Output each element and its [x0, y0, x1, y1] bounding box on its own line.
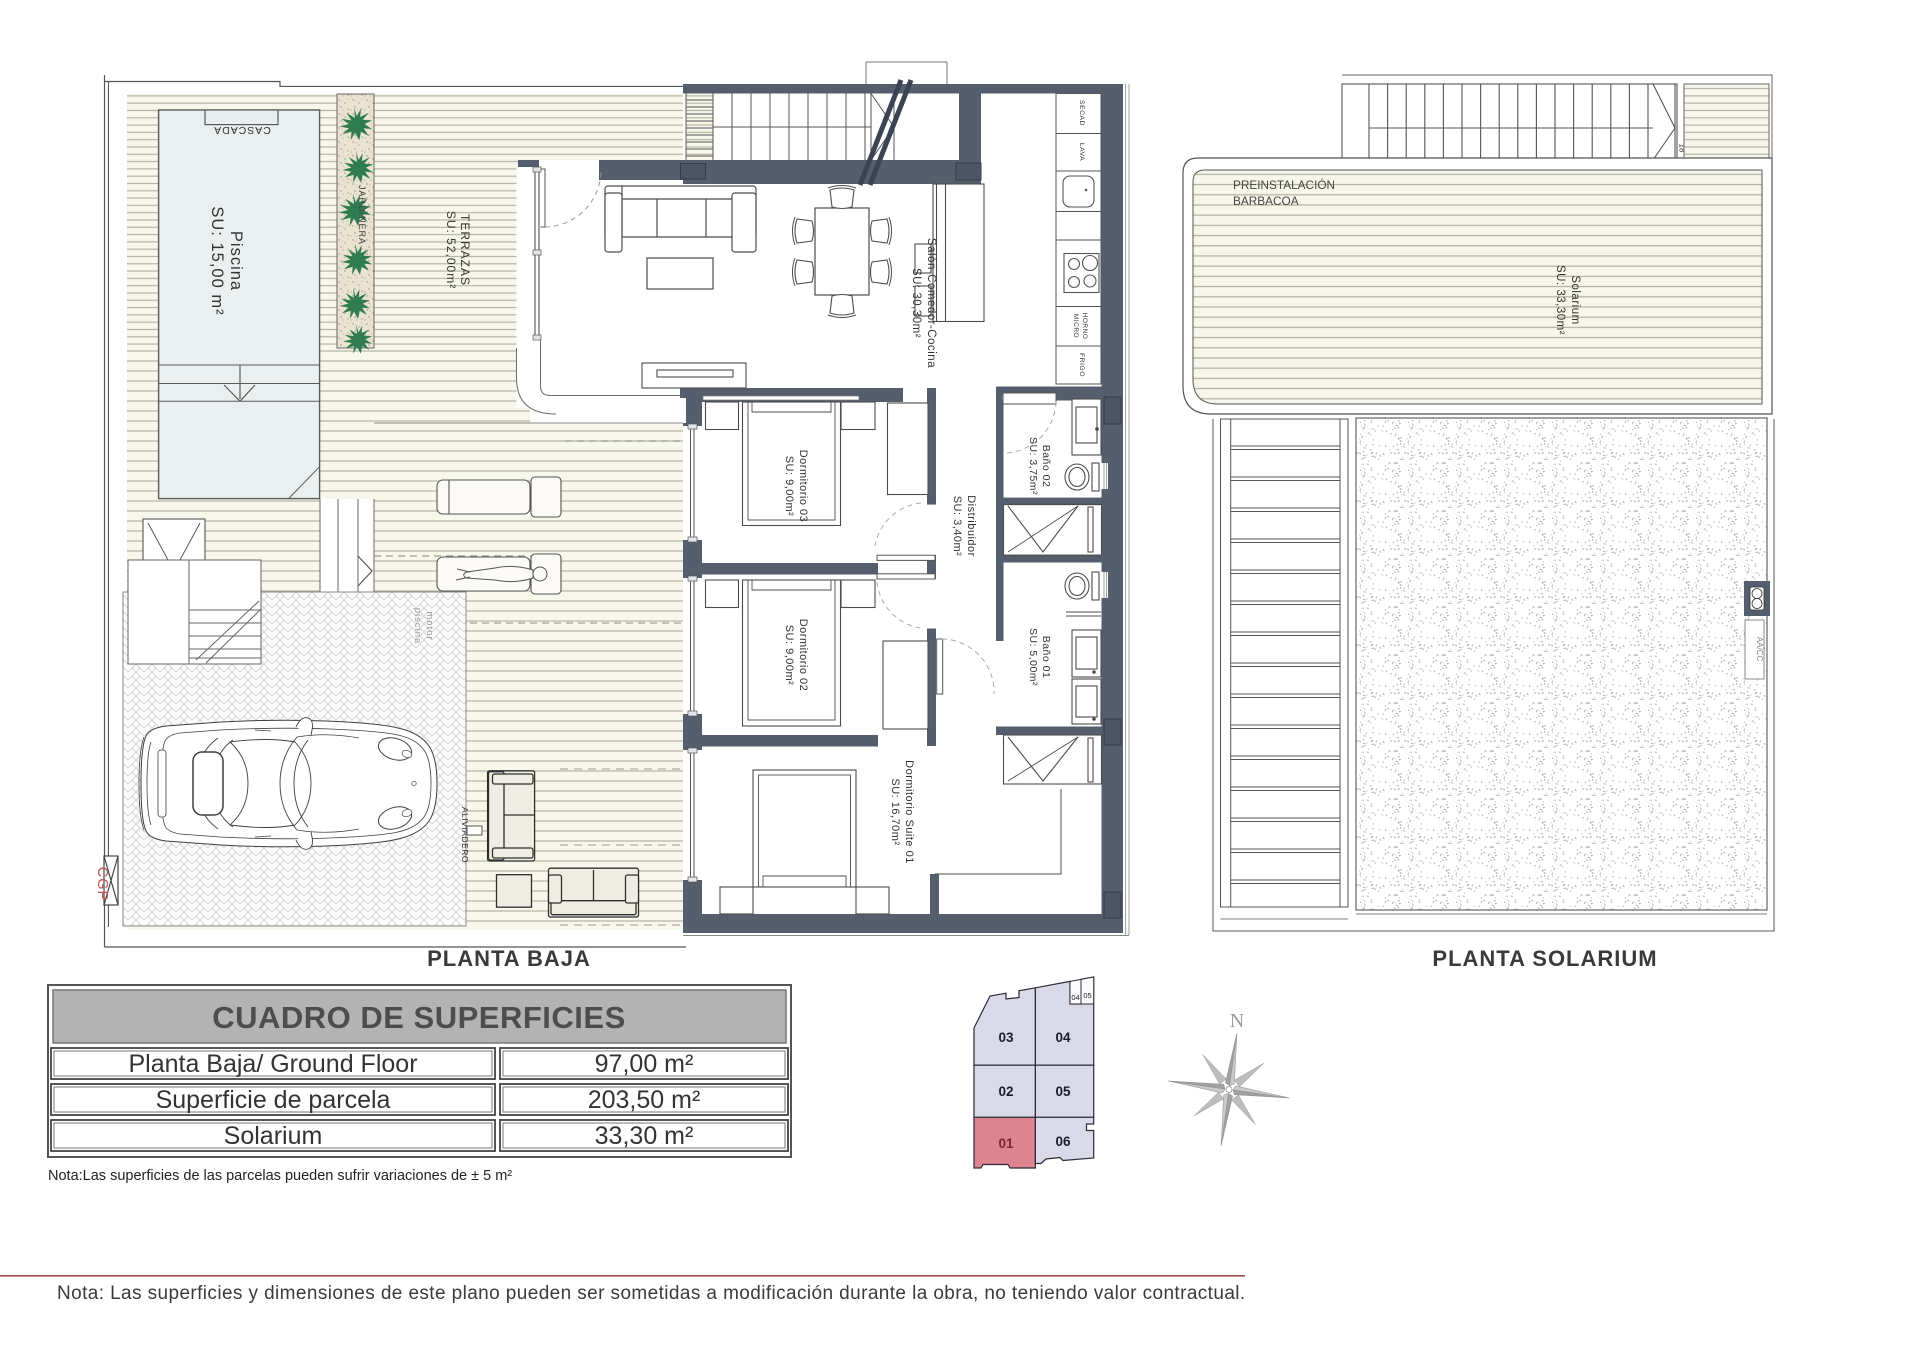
svg-text:SU: 5,00m²: SU: 5,00m² — [1027, 628, 1039, 686]
svg-text:motor: motor — [424, 611, 435, 640]
svg-text:SU: 9,00m²: SU: 9,00m² — [783, 456, 795, 517]
svg-text:97,00 m²: 97,00 m² — [595, 1050, 694, 1078]
svg-text:AA/CC: AA/CC — [1755, 637, 1764, 662]
svg-text:PLANTA SOLARIUM: PLANTA SOLARIUM — [1432, 946, 1657, 971]
svg-text:SU: 15,00 m²: SU: 15,00 m² — [208, 206, 226, 315]
svg-text:Distribuidor: Distribuidor — [965, 495, 977, 557]
svg-text:TERRAZAS: TERRAZAS — [458, 214, 472, 286]
svg-text:CUADRO DE SUPERFICIES: CUADRO DE SUPERFICIES — [212, 1000, 626, 1035]
svg-text:JARDINERA: JARDINERA — [357, 185, 367, 245]
svg-text:Baño 01: Baño 01 — [1040, 636, 1052, 679]
svg-text:Nota:Las superficies de las pa: Nota:Las superficies de las parcelas pue… — [48, 1168, 512, 1184]
svg-text:Planta Baja/ Ground Floor: Planta Baja/ Ground Floor — [128, 1050, 417, 1078]
svg-text:PREINSTALACIÓN: PREINSTALACIÓN — [1233, 178, 1335, 192]
svg-text:Nota: Las superficies y dimens: Nota: Las superficies y dimensiones de e… — [57, 1283, 1246, 1304]
svg-text:33,30 m²: 33,30 m² — [595, 1122, 694, 1150]
svg-text:BARBACOA: BARBACOA — [1233, 194, 1299, 208]
svg-text:06: 06 — [1055, 1134, 1071, 1149]
svg-text:Solarium: Solarium — [224, 1122, 323, 1150]
svg-text:N: N — [1230, 1010, 1244, 1032]
svg-text:Baño 02: Baño 02 — [1040, 445, 1052, 488]
svg-text:FRIGO: FRIGO — [1078, 353, 1085, 377]
svg-text:03: 03 — [998, 1030, 1014, 1045]
svg-text:04: 04 — [1071, 993, 1079, 1002]
svg-text:SU: 30,30m²: SU: 30,30m² — [910, 268, 922, 338]
svg-text:04: 04 — [1055, 1030, 1071, 1045]
svg-text:Dormitorio Suite 01: Dormitorio Suite 01 — [903, 760, 915, 864]
svg-text:05: 05 — [1083, 991, 1091, 1000]
svg-text:Superficie de parcela: Superficie de parcela — [156, 1086, 391, 1114]
svg-text:MICRO: MICRO — [1072, 314, 1079, 338]
svg-text:Dormitorio 02: Dormitorio 02 — [797, 619, 809, 692]
svg-text:SU: 9,00m²: SU: 9,00m² — [783, 625, 795, 686]
svg-text:SECAD: SECAD — [1078, 100, 1085, 126]
svg-text:Piscina: Piscina — [227, 231, 245, 291]
svg-text:Solarium: Solarium — [1569, 275, 1581, 324]
svg-text:SU: 3,40m²: SU: 3,40m² — [951, 496, 963, 557]
svg-text:CASCADA: CASCADA — [213, 124, 271, 136]
svg-text:piscina: piscina — [412, 608, 423, 645]
svg-text:Dormitorio 03: Dormitorio 03 — [797, 450, 809, 523]
svg-text:SU: 16,70m²: SU: 16,70m² — [889, 778, 901, 845]
svg-text:02: 02 — [998, 1084, 1013, 1099]
svg-text:05: 05 — [1055, 1084, 1071, 1099]
svg-text:LAVA: LAVA — [1078, 143, 1085, 161]
svg-text:SU: 33,30m²: SU: 33,30m² — [1554, 265, 1566, 335]
svg-text:HORNO: HORNO — [1081, 313, 1088, 340]
svg-text:01: 01 — [998, 1136, 1014, 1151]
svg-text:SU: 3,75m²: SU: 3,75m² — [1027, 437, 1039, 495]
svg-text:Salón-Comedor-Cocina: Salón-Comedor-Cocina — [925, 238, 937, 368]
svg-text:CGP: CGP — [94, 867, 110, 901]
svg-text:203,50 m²: 203,50 m² — [588, 1086, 701, 1114]
svg-text:SU: 52,00m²: SU: 52,00m² — [444, 211, 458, 289]
svg-text:PLANTA BAJA: PLANTA BAJA — [427, 946, 591, 971]
